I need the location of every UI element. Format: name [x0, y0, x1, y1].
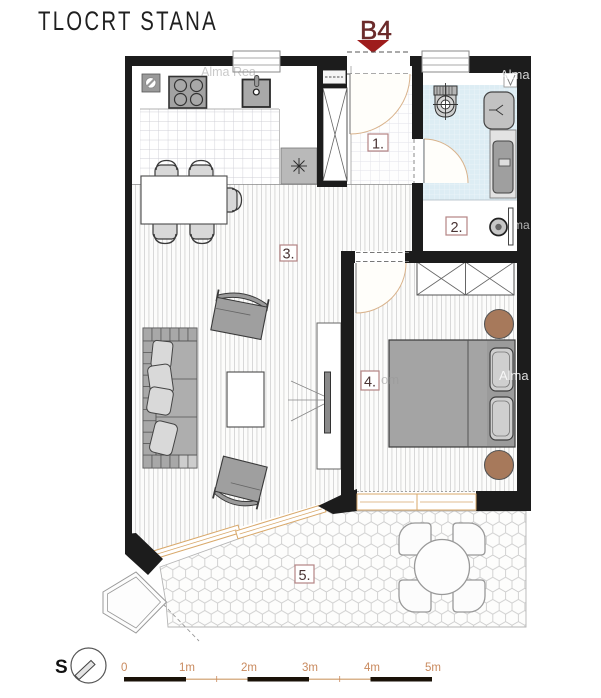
- svg-text:3.: 3.: [282, 247, 294, 263]
- svg-text:2m: 2m: [241, 662, 257, 674]
- svg-text:1m: 1m: [179, 662, 195, 674]
- svg-text:Alma: Alma: [500, 67, 530, 82]
- svg-text:Alma R: Alma R: [499, 368, 542, 383]
- svg-text:5m: 5m: [425, 662, 441, 674]
- svg-text:TLOCRT STANA: TLOCRT STANA: [38, 6, 218, 36]
- svg-text:0: 0: [121, 662, 127, 674]
- svg-text:2.: 2.: [450, 220, 462, 236]
- svg-text:5.: 5.: [298, 568, 310, 584]
- svg-text:S: S: [55, 657, 68, 678]
- svg-text:4.: 4.: [364, 375, 376, 391]
- svg-text:1.: 1.: [372, 137, 384, 153]
- svg-text:3m: 3m: [302, 662, 318, 674]
- svg-text:ma: ma: [513, 218, 530, 232]
- svg-text:Alma Rea: Alma Rea: [201, 65, 256, 79]
- svg-text:4m: 4m: [364, 662, 380, 674]
- svg-text:om: om: [381, 372, 399, 387]
